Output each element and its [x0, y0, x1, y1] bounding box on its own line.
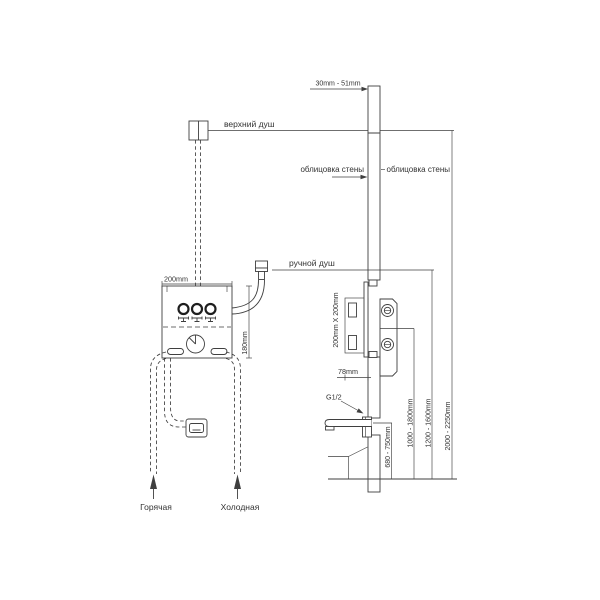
dim-cladding-thickness: 30mm - 51mm: [310, 81, 368, 92]
svg-text:1000 - 1800mm: 1000 - 1800mm: [408, 398, 415, 447]
mixer-box-side: [345, 280, 397, 376]
dim-hand-shower-height: 1200 - 1600mm: [426, 270, 433, 479]
svg-text:200mm: 200mm: [164, 275, 188, 284]
spout-pipe: [165, 358, 187, 427]
diverter-icon: [187, 335, 205, 353]
dim-spout-height: 680 - 750mm: [373, 423, 392, 479]
svg-text:30mm - 51mm: 30mm - 51mm: [315, 81, 360, 88]
label-spout-thread: G1/2: [326, 393, 342, 402]
hot-supply-arrow: [150, 475, 157, 500]
front-view: верхний душ ручной душ 200mm: [140, 119, 454, 512]
label-wall-cladding-left: облицовка стены: [300, 165, 364, 174]
spout-front-icon: [186, 419, 207, 437]
cold-supply-arrow: [234, 475, 241, 500]
label-hot-supply: Горячая: [140, 502, 172, 512]
overhead-shower-icon: [189, 121, 208, 140]
label-top-shower: верхний душ: [224, 119, 275, 129]
dim-head-shower-height: 2000 - 2250mm: [445, 131, 452, 480]
cladding-left-arrow: [332, 175, 368, 179]
label-hand-shower: ручной душ: [289, 258, 335, 268]
side-view: 30mm - 51mm облицовка стены облицовка ст…: [300, 81, 457, 493]
dim-box-width: 200mm: [162, 275, 232, 288]
mixer-box-front: [162, 286, 232, 358]
dim-rough-in-box: 200mm X 200mm: [333, 292, 340, 347]
svg-text:1200 - 1600mm: 1200 - 1600mm: [426, 398, 433, 447]
cold-pipe: [226, 352, 241, 474]
thread-leader-arrow: [341, 401, 364, 414]
svg-text:180mm: 180mm: [242, 331, 249, 355]
svg-text:2000 - 2250mm: 2000 - 2250mm: [445, 401, 452, 450]
dim-box-height: 180mm: [242, 286, 252, 358]
installation-diagram: верхний душ ручной душ 200mm: [0, 0, 600, 600]
hot-pipe: [151, 352, 167, 474]
svg-text:680 - 750mm: 680 - 750mm: [385, 426, 392, 467]
hand-shower-connector-icon: [232, 261, 268, 314]
label-wall-cladding-right: облицовка стены: [387, 165, 451, 174]
spout-side-icon: [325, 417, 372, 437]
svg-text:78mm: 78mm: [338, 367, 358, 376]
label-cold-supply: Холодная: [221, 502, 260, 512]
dim-box-depth: 78mm: [337, 367, 371, 381]
floor-line: [328, 447, 457, 479]
